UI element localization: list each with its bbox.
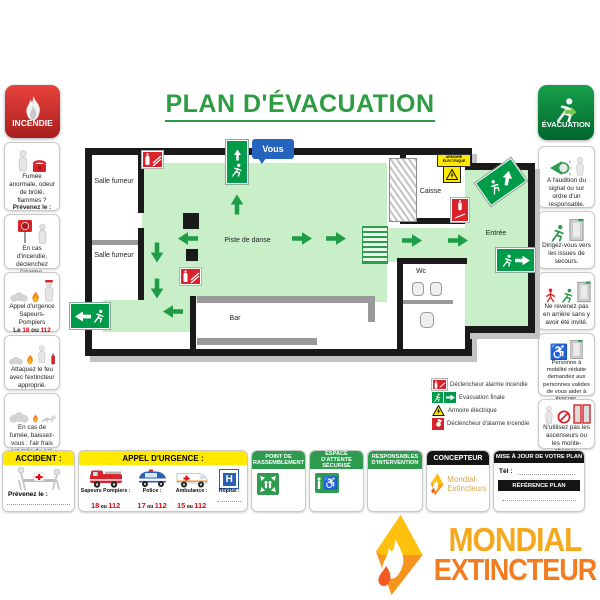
evac-arrow-left: [178, 232, 198, 245]
evac-arrow-right: [326, 232, 346, 245]
incendie-badge: INCENDIE: [5, 85, 60, 138]
fire-truck-icon: [88, 467, 124, 489]
urgence-header: APPEL D'URGENCE :: [79, 451, 247, 465]
accident-panel: ACCIDENT : Prévenez le :: [2, 450, 75, 512]
legend-label: Déclencheur alarme incendie: [450, 382, 528, 388]
call-number-18: 18: [22, 327, 29, 334]
firefighter-icon: [42, 279, 56, 303]
smoke-cloud-icon: [8, 356, 24, 366]
attente-panel: ESPACE D'ATTENTE SÉCURISÉ ♿: [309, 450, 364, 512]
alarm-button-icon: [432, 418, 444, 430]
you-are-here-label: Vous: [262, 144, 283, 154]
slanted-text-mark: [454, 212, 466, 220]
bar-counter: [197, 296, 375, 303]
rassemblement-panel: POINT DE RASSEMBLEMENT: [251, 450, 306, 512]
call-number-112: 112: [41, 327, 51, 334]
write-line: [518, 468, 575, 475]
brand-line2: EXTINCTEUR: [432, 555, 598, 586]
maj-tel-label: Tél :: [499, 468, 512, 475]
flame-icon: [31, 291, 40, 303]
extinguisher-sign: [142, 151, 163, 168]
evacuation-plan-poster: PLAN D'ÉVACUATION INCENDIE Fumée anormal…: [0, 0, 600, 600]
extinguisher-icon: [456, 199, 464, 212]
megaphone-icon: [548, 159, 572, 177]
police-car-icon: [134, 467, 170, 489]
interior-wall: [138, 228, 144, 300]
incendie-card-extinguish: Attaquez le feu avec l'extincteur approp…: [4, 335, 60, 390]
elevator-doors-icon: [573, 404, 591, 424]
pillar: [186, 249, 198, 261]
person-icon: [36, 343, 48, 366]
incendie-card-extinguish-text: Attaquez le feu avec l'extincteur approp…: [8, 366, 56, 390]
evac-arrow-right: [448, 234, 468, 247]
room-label-wc: Wc: [406, 268, 436, 276]
urgence-sep: ou: [101, 504, 107, 510]
legend-item-extincteur: Déclencheur alarme incendie: [432, 378, 572, 391]
attente-header: ESPACE D'ATTENTE SÉCURISÉ: [310, 451, 363, 469]
smoke-cloud-icon: [9, 292, 29, 303]
interior-wall: [190, 296, 196, 349]
bar-counter: [368, 296, 375, 322]
brand-wordmark: MONDIAL EXTINCTEUR: [432, 526, 598, 584]
evac-card-noreturn-text: Ne revenez pas en arrière sans y avoir é…: [542, 303, 591, 327]
incendie-card-alarm: En cas d'incendie, déclenchez l'alarme.: [4, 214, 60, 269]
call-prefix: Le: [13, 327, 20, 334]
crawling-person-icon: [41, 414, 56, 424]
electrical-warning-sign: [443, 166, 461, 183]
evac-arrow-down: [151, 279, 164, 299]
flame-icon: [26, 353, 34, 366]
responsables-panel: RESPONSABLES D'INTERVENTION: [367, 450, 423, 512]
wc-fixture: [412, 282, 424, 296]
room-label-piste: Piste de danse: [205, 237, 290, 245]
evac-arrow-right: [402, 234, 422, 247]
extinguisher-icon: [50, 352, 56, 366]
lightning-triangle-icon: [446, 169, 458, 180]
evac-arrow-up: [231, 195, 244, 215]
exit-sign-top: [226, 140, 248, 184]
legend-label: Evacuation finale: [459, 395, 505, 401]
exit-running-man-icon: [230, 163, 244, 177]
brand-logo: MONDIAL EXTINCTEUR: [362, 512, 598, 598]
rassemblement-header: POINT DE RASSEMBLEMENT: [252, 451, 305, 469]
responsables-header: RESPONSABLES D'INTERVENTION: [368, 451, 422, 469]
wc-fixture: [420, 312, 434, 328]
evac-card-signal-text: A l'audition du signal ou sur ordre d'un…: [542, 177, 591, 208]
wheelchair-icon: ♿: [323, 477, 338, 489]
call-sep: ou: [31, 327, 39, 334]
exit-sign-left: [70, 303, 110, 329]
incendie-card-call: Appel d'urgence Sapeurs-Pompiers Le 18 o…: [4, 272, 60, 332]
wc-fixture: [430, 282, 442, 296]
stretcher-icon: [3, 465, 74, 491]
maj-header: MISE À JOUR DE VOTRE PLAN: [494, 451, 584, 463]
write-line: [7, 499, 70, 505]
urgence-label: Hôpital :: [219, 489, 240, 495]
exit-arrow-upright-icon: [500, 169, 513, 186]
extinguisher-icon: [181, 269, 190, 284]
legend-label: Armoire électrique: [448, 408, 497, 414]
legend-label: Déclencheur d'alarme incendie: [447, 421, 529, 427]
evac-card-noreturn: Ne revenez pas en arrière sans y avoir é…: [538, 272, 595, 330]
extinguisher-icon: [143, 152, 152, 167]
evac-card-signal: A l'audition du signal ou sur ordre d'un…: [538, 146, 595, 208]
exit-running-man-icon: [92, 309, 106, 323]
safe-waiting-area-icon: ♿: [315, 473, 339, 493]
green-person-icon: [560, 288, 575, 303]
slanted-text-mark: [152, 152, 162, 167]
person-icon: [574, 156, 586, 177]
room-label-salle-fumeur-1: Salle fumeur: [90, 178, 138, 186]
concepteur-header: CONCEPTEUR: [427, 451, 489, 465]
person-icon: [16, 149, 30, 173]
you-are-here-bubble: Vous: [252, 139, 294, 159]
legend: Déclencheur alarme incendie Evacuation f…: [432, 378, 572, 430]
incendie-card-alert: Fumée anormale, odeur de brûlé, flammes …: [4, 142, 60, 211]
urgence-police: Police : 17 ou 112: [134, 467, 170, 512]
phone-icon: [32, 159, 48, 173]
exit-arrow-right-icon: [515, 255, 530, 266]
person-icon: [36, 223, 49, 245]
write-line: [502, 495, 576, 501]
evac-arrow-right: [292, 232, 312, 245]
incendie-card-call-text: Appel d'urgence Sapeurs-Pompiers: [8, 303, 56, 327]
incendie-card-alert-text: Fumée anormale, odeur de brûlé, flammes …: [8, 173, 56, 204]
evac-arrow-down: [151, 243, 164, 263]
urgence-pompiers: Sapeurs Pompiers : 18 ou 112: [81, 467, 131, 512]
mondial-extincteur-flame-icon: [362, 513, 432, 597]
wheelchair-icon: ♿: [550, 345, 569, 360]
running-person-icon: [549, 224, 567, 242]
urgence-number: 112: [194, 501, 206, 510]
exit-door-icon: [577, 281, 591, 303]
exit-running-man-icon: [501, 254, 514, 267]
incendie-card-smoke: En cas de fumée, baissez-vous : l'air fr…: [4, 393, 60, 448]
legend-item-armoire: Armoire électrique: [432, 404, 572, 417]
assembly-point-icon: [257, 473, 279, 495]
mondial-flame-icon: [429, 473, 444, 496]
room-label-caisse: Caisse: [408, 188, 453, 196]
lightning-triangle-icon: [432, 405, 445, 416]
exit-arrow-left-icon: [75, 311, 91, 322]
exit-door-icon: [569, 218, 584, 242]
accident-bold: Prévenez le :: [3, 491, 74, 498]
legend-item-declencheur: Déclencheur d'alarme incendie: [432, 417, 572, 430]
incendie-badge-label: INCENDIE: [12, 118, 53, 128]
accident-header: ACCIDENT :: [3, 451, 74, 465]
page-title: PLAN D'ÉVACUATION: [140, 90, 460, 122]
urgence-number: 17: [137, 501, 145, 510]
room-label-entree: Entrée: [468, 230, 524, 238]
maj-ref-header: RÉFÉRENCE PLAN: [498, 480, 580, 491]
mise-a-jour-panel: MISE À JOUR DE VOTRE PLAN Tél : RÉFÉRENC…: [493, 450, 585, 512]
page-title-text: PLAN D'ÉVACUATION: [165, 90, 434, 122]
extinguisher-sign: [180, 268, 201, 285]
evac-arrow-left: [163, 305, 183, 318]
incendie-card-alert-bold: Prévenez le :: [8, 204, 56, 212]
slanted-text-mark: [190, 269, 200, 284]
room-label-salle-fumeur-2: Salle fumeur: [90, 252, 138, 260]
stairs-green: [362, 226, 388, 264]
bar-counter: [197, 338, 317, 345]
room-label-bar: Bar: [215, 315, 255, 323]
urgence-number: 112: [108, 501, 120, 510]
wc-partition: [403, 300, 453, 304]
evacuation-badge: ÉVACUATION: [538, 85, 594, 140]
urgence-panel: APPEL D'URGENCE : Sapeurs Pompiers : 18 …: [78, 450, 248, 512]
write-line: [217, 496, 241, 502]
evac-card-exits-text: Dirigez-vous vers les issues de secours.: [542, 242, 591, 266]
interior-wall: [397, 258, 467, 264]
evac-card-exits: Dirigez-vous vers les issues de secours.: [538, 211, 595, 269]
evacuation-badge-label: ÉVACUATION: [542, 120, 590, 129]
concepteur-panel: CONCEPTEUR Mondial Extincteurs: [426, 450, 490, 512]
exit-sign-entrance-right: [496, 248, 535, 272]
ambulance-icon: [174, 467, 210, 489]
fire-alarm-icon: [16, 219, 34, 245]
urgence-hopital: H Hôpital :: [213, 467, 245, 512]
pillar: [183, 213, 199, 229]
final-exit-sign-icon: [432, 392, 456, 403]
urgence-sep: ou: [187, 504, 193, 510]
interior-wall: [92, 240, 138, 245]
exit-arrow-up-icon: [230, 149, 244, 160]
hospital-sign-icon: H: [219, 469, 239, 489]
exit-door-icon: [570, 339, 583, 360]
smoke-cloud-icon: [8, 412, 30, 424]
flame-icon: [32, 413, 39, 424]
extinguisher-sign-icon: [432, 379, 447, 390]
urgence-number: 112: [155, 501, 167, 510]
red-person-icon: [543, 288, 558, 303]
urgence-ambulance: Ambulance : 15 ou 112: [174, 467, 210, 512]
bubble-tail: [258, 158, 266, 164]
legend-item-evacuation-finale: Evacuation finale: [432, 391, 572, 404]
concepteur-brand2: Extincteurs: [447, 485, 487, 494]
extinguisher-sign: [451, 198, 469, 222]
